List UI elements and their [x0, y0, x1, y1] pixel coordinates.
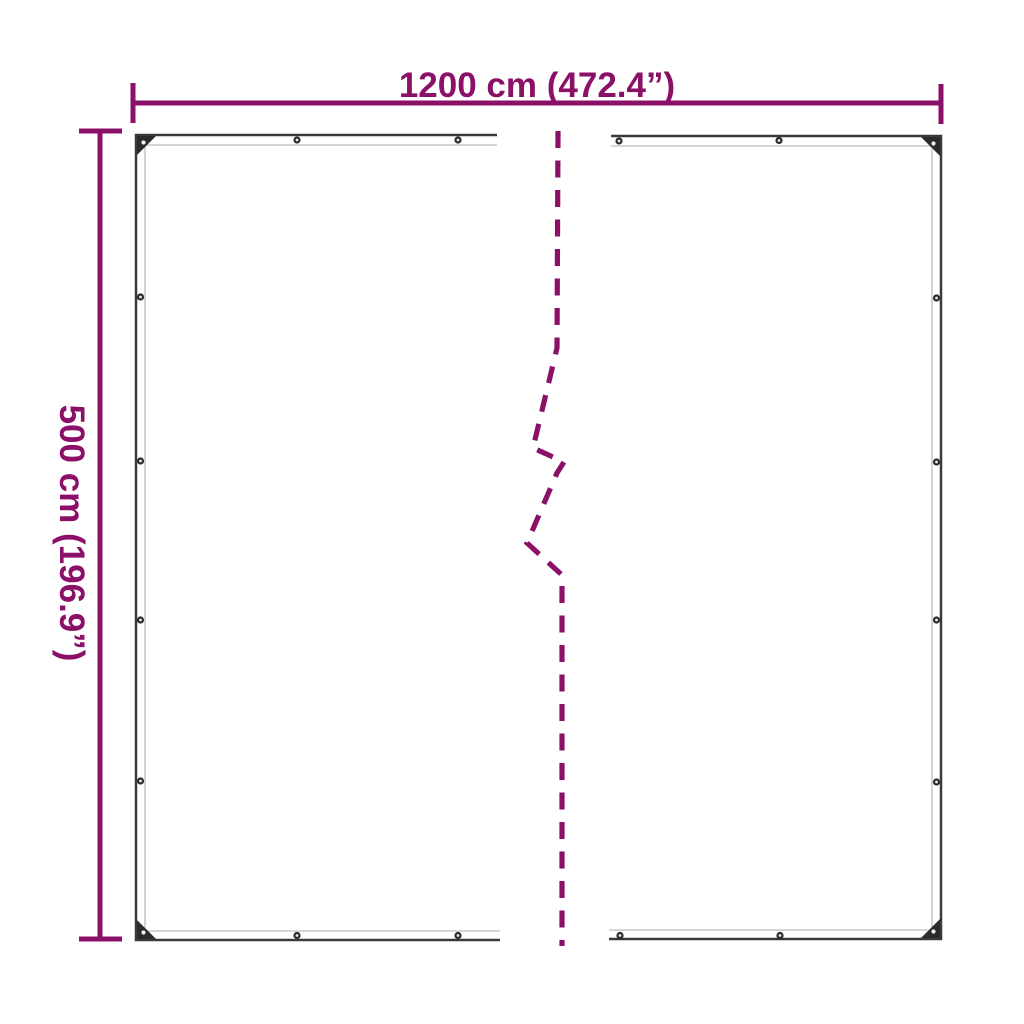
- eyelet: [615, 137, 622, 144]
- eyelet: [933, 616, 940, 623]
- dimension-diagram: 1200 cm (472.4”) 500 cm (196.9”): [0, 0, 1024, 1024]
- eyelet: [137, 293, 144, 300]
- tarp-left-panel: [136, 135, 500, 940]
- break-line: [527, 131, 564, 946]
- height-dimension-label: 500 cm (196.9”): [52, 405, 91, 662]
- eyelet: [933, 458, 940, 465]
- eyelet: [454, 136, 461, 143]
- eyelet: [293, 932, 300, 939]
- tarp-right-inner-seam: [609, 146, 932, 930]
- eyelet: [775, 137, 782, 144]
- height-dimension: 500 cm (196.9”): [52, 131, 122, 939]
- eyelet: [933, 778, 940, 785]
- corner-eyelet-flap: [921, 919, 940, 938]
- eyelet: [293, 136, 300, 143]
- eyelet: [616, 932, 623, 939]
- tarp-left-inner-seam: [145, 145, 500, 931]
- tarp-right-panel: [609, 136, 941, 939]
- eyelet: [137, 777, 144, 784]
- width-dimension: 1200 cm (472.4”): [133, 66, 941, 124]
- diagram-canvas: 1200 cm (472.4”) 500 cm (196.9”): [0, 0, 1024, 1024]
- eyelet: [776, 932, 783, 939]
- tarp-right-outer-edge: [609, 136, 941, 939]
- width-dimension-label: 1200 cm (472.4”): [399, 66, 675, 105]
- corner-eyelet-flap: [137, 920, 156, 939]
- eyelet: [933, 294, 940, 301]
- tarp-left-outer-edge: [136, 135, 500, 940]
- eyelet: [137, 616, 144, 623]
- eyelet: [137, 457, 144, 464]
- eyelet: [454, 932, 461, 939]
